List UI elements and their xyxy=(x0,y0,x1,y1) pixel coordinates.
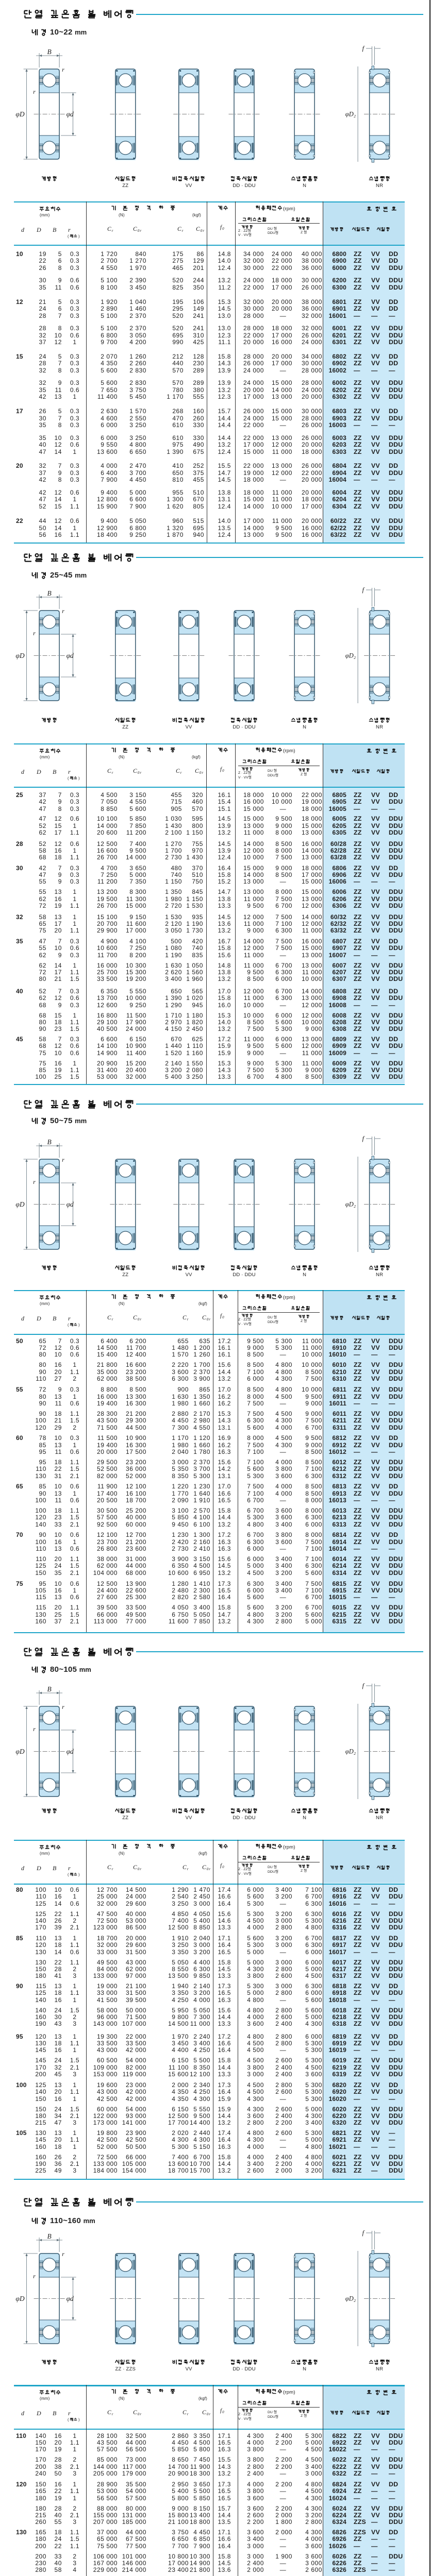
svg-text:f: f xyxy=(362,1682,365,1689)
svg-text:φd: φd xyxy=(67,1200,74,1208)
svg-text:φd: φd xyxy=(67,110,74,118)
svg-text:r: r xyxy=(33,2273,36,2280)
svg-text:B: B xyxy=(47,589,51,597)
svg-text:φD₂: φD₂ xyxy=(345,2295,356,2302)
svg-text:f: f xyxy=(362,586,365,594)
svg-text:B: B xyxy=(47,48,51,56)
svg-text:r: r xyxy=(33,630,36,637)
svg-text:r: r xyxy=(62,66,64,73)
svg-text:φD: φD xyxy=(15,1748,24,1755)
svg-text:f: f xyxy=(362,44,365,52)
svg-text:r: r xyxy=(62,2250,64,2258)
svg-text:φD₂: φD₂ xyxy=(345,1200,356,1208)
svg-text:φD: φD xyxy=(15,110,24,118)
svg-text:f: f xyxy=(362,1134,365,1142)
svg-text:φD: φD xyxy=(15,2295,24,2302)
svg-text:φD: φD xyxy=(15,652,24,659)
svg-text:φD₂: φD₂ xyxy=(345,111,356,118)
svg-text:φD₂: φD₂ xyxy=(345,1748,356,1755)
svg-text:f: f xyxy=(362,2229,365,2236)
svg-text:B: B xyxy=(47,1685,51,1693)
svg-text:φd: φd xyxy=(67,2295,74,2302)
svg-text:B: B xyxy=(47,2232,51,2240)
svg-text:φd: φd xyxy=(67,1748,74,1755)
svg-text:φD: φD xyxy=(15,1200,24,1208)
svg-text:φd: φd xyxy=(67,652,74,659)
svg-text:r: r xyxy=(33,88,36,95)
svg-text:B: B xyxy=(47,1138,51,1146)
svg-text:r: r xyxy=(33,1725,36,1733)
svg-text:r: r xyxy=(62,1703,64,1710)
svg-text:φD₂: φD₂ xyxy=(345,652,356,659)
svg-text:r: r xyxy=(62,1156,64,1163)
svg-text:r: r xyxy=(33,1178,36,1185)
svg-text:r: r xyxy=(62,607,64,615)
